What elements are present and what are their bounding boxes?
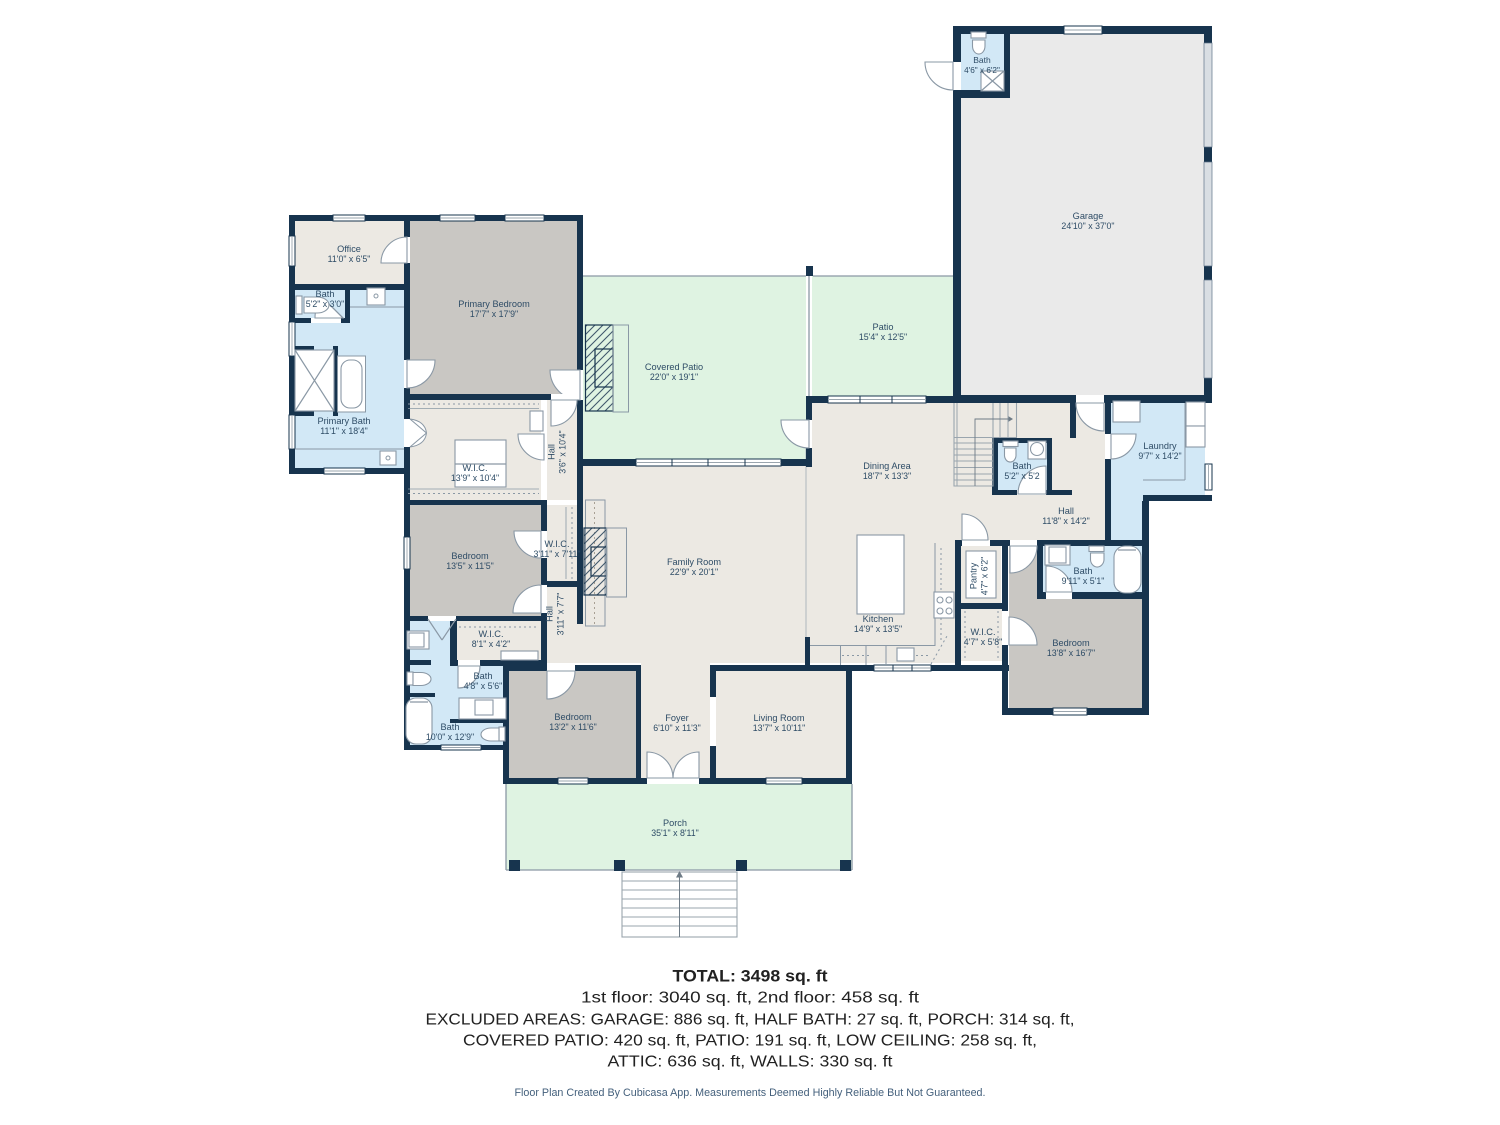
svg-text:Bath: Bath [973,55,991,65]
svg-text:5'2" x 5'2: 5'2" x 5'2 [1004,471,1039,481]
svg-text:W.I.C.: W.I.C. [544,539,569,549]
svg-text:Laundry: Laundry [1143,441,1177,451]
svg-text:8'1" x 4'2": 8'1" x 4'2" [472,639,510,649]
svg-text:22'0" x 19'1": 22'0" x 19'1" [650,372,698,382]
svg-text:11'1" x 18'4": 11'1" x 18'4" [320,426,368,436]
svg-text:3'11" x 7'7": 3'11" x 7'7" [556,593,566,636]
svg-text:Patio: Patio [873,322,894,332]
svg-text:Bath: Bath [474,671,493,681]
svg-text:Hall: Hall [547,444,557,460]
svg-text:Bath: Bath [316,289,335,299]
svg-text:4'8" x 5'6": 4'8" x 5'6" [464,681,502,691]
svg-text:10'0" x 12'9": 10'0" x 12'9" [426,732,474,742]
svg-text:5'2" x 3'0": 5'2" x 3'0" [306,299,344,309]
svg-text:Family Room: Family Room [667,557,721,567]
svg-text:14'9" x 13'5": 14'9" x 13'5" [854,624,902,634]
svg-text:35'1" x 8'11": 35'1" x 8'11" [651,828,699,838]
svg-text:ATTIC: 636 sq. ft, WALLS: 330: ATTIC: 636 sq. ft, WALLS: 330 sq. ft [608,1054,894,1071]
svg-text:17'7" x 17'9": 17'7" x 17'9" [470,309,518,319]
svg-text:4'7" x 6'2": 4'7" x 6'2" [980,557,990,595]
svg-text:EXCLUDED AREAS: GARAGE: 886 sq: EXCLUDED AREAS: GARAGE: 886 sq. ft, HALF… [426,1012,1075,1029]
svg-text:Foyer: Foyer [665,713,689,723]
svg-text:Bedroom: Bedroom [554,712,592,722]
svg-text:Hall: Hall [1058,506,1074,516]
svg-text:Primary Bedroom: Primary Bedroom [458,299,530,309]
svg-text:Living Room: Living Room [753,713,804,723]
svg-text:13'8" x 16'7": 13'8" x 16'7" [1047,648,1095,658]
svg-text:Kitchen: Kitchen [863,614,894,624]
svg-text:13'9" x 10'4": 13'9" x 10'4" [451,473,499,483]
svg-text:Bath: Bath [1074,566,1093,576]
svg-text:COVERED PATIO: 420 sq. ft, PAT: COVERED PATIO: 420 sq. ft, PATIO: 191 sq… [463,1033,1037,1050]
svg-text:Bath: Bath [1013,461,1032,471]
svg-text:3'6" x 10'4": 3'6" x 10'4" [558,430,568,473]
svg-text:Bath: Bath [441,722,460,732]
svg-text:Office: Office [337,244,361,254]
svg-text:13'2" x 11'6": 13'2" x 11'6" [549,722,597,732]
svg-text:Bedroom: Bedroom [451,551,489,561]
svg-text:Bedroom: Bedroom [1052,638,1090,648]
svg-text:Primary Bath: Primary Bath [317,416,370,426]
svg-text:Covered Patio: Covered Patio [645,362,703,372]
svg-text:22'9" x 20'1": 22'9" x 20'1" [670,567,718,577]
svg-text:24'10" x 37'0": 24'10" x 37'0" [1061,221,1114,231]
svg-text:Pantry: Pantry [969,562,979,589]
svg-text:11'0" x 6'5": 11'0" x 6'5" [328,254,371,264]
svg-text:9'11" x 5'1": 9'11" x 5'1" [1062,576,1105,586]
svg-text:4'6" x 6'2": 4'6" x 6'2" [964,66,1000,75]
svg-text:6'10" x 11'3": 6'10" x 11'3" [653,723,701,733]
svg-text:Porch: Porch [663,818,687,828]
svg-text:3'11" x 7'11": 3'11" x 7'11" [534,549,581,559]
svg-text:18'7" x 13'3": 18'7" x 13'3" [863,471,911,481]
svg-text:4'7" x 5'8": 4'7" x 5'8" [964,637,1002,647]
svg-text:Garage: Garage [1073,211,1104,221]
svg-text:W.I.C.: W.I.C. [478,629,503,639]
svg-text:W.I.C.: W.I.C. [462,463,487,473]
svg-text:Hall: Hall [545,606,555,622]
svg-text:TOTAL: 3498 sq. ft: TOTAL: 3498 sq. ft [673,968,829,986]
svg-text:11'8" x 14'2": 11'8" x 14'2" [1042,516,1090,526]
svg-text:13'5" x 11'5": 13'5" x 11'5" [446,561,494,571]
svg-text:13'7" x 10'11": 13'7" x 10'11" [753,723,806,733]
svg-text:Floor Plan Created By Cubicasa: Floor Plan Created By Cubicasa App. Meas… [515,1087,986,1099]
svg-text:9'7" x 14'2": 9'7" x 14'2" [1138,451,1181,461]
svg-text:Dining Area: Dining Area [863,461,911,471]
svg-text:15'4" x 12'5": 15'4" x 12'5" [859,332,907,342]
svg-text:W.I.C.: W.I.C. [970,627,995,637]
svg-text:1st floor: 3040 sq. ft, 2nd fl: 1st floor: 3040 sq. ft, 2nd floor: 458 s… [581,990,920,1007]
